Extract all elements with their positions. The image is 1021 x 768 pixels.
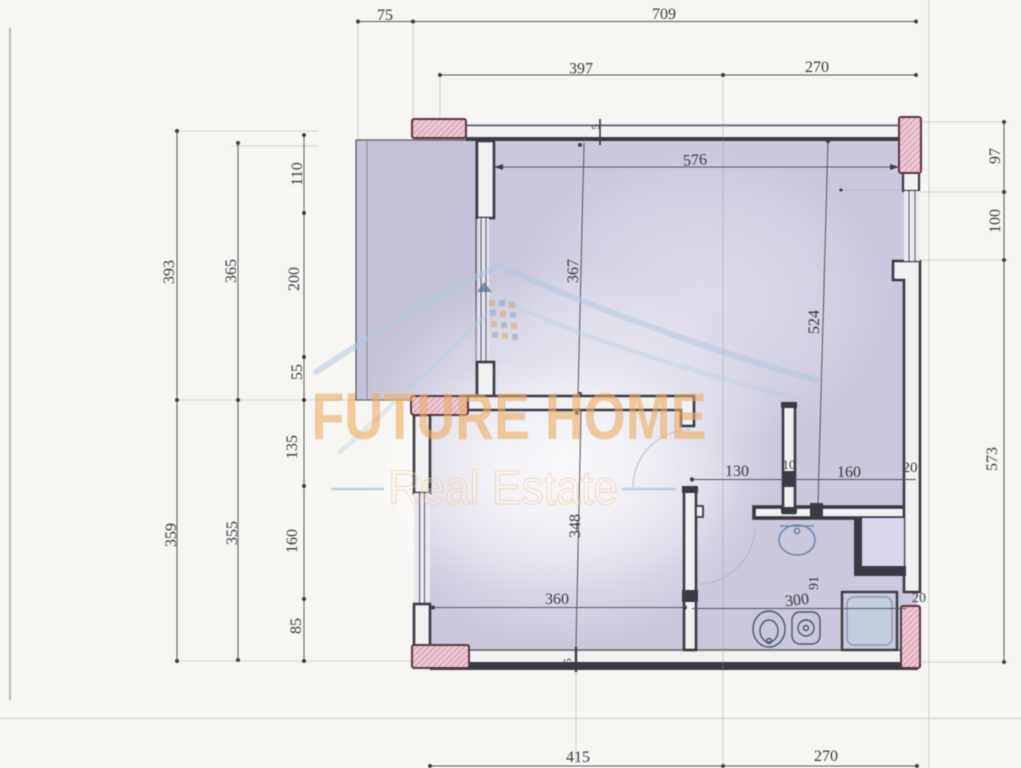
svg-text:348: 348	[567, 514, 584, 538]
svg-text:200: 200	[286, 267, 303, 291]
svg-text:576: 576	[683, 151, 708, 169]
svg-text:160: 160	[284, 529, 301, 553]
svg-text:415: 415	[566, 749, 590, 766]
svg-text:359: 359	[163, 523, 180, 547]
svg-text:524: 524	[806, 310, 823, 334]
svg-text:130: 130	[725, 463, 749, 480]
svg-text:300: 300	[784, 591, 810, 611]
svg-text:100: 100	[987, 209, 1004, 233]
svg-text:573: 573	[984, 447, 1001, 471]
svg-text:365: 365	[223, 259, 240, 283]
svg-text:270: 270	[805, 59, 829, 76]
svg-text:75: 75	[377, 7, 393, 24]
svg-text:110: 110	[289, 162, 306, 185]
svg-text:85: 85	[288, 618, 305, 634]
svg-text:160: 160	[837, 464, 861, 481]
svg-text:367: 367	[565, 259, 582, 283]
svg-text:360: 360	[545, 591, 569, 608]
svg-text:270: 270	[814, 748, 838, 765]
svg-text:20: 20	[912, 591, 926, 606]
svg-text:135: 135	[284, 435, 301, 459]
svg-text:5: 5	[590, 124, 602, 130]
svg-text:91: 91	[807, 576, 822, 590]
svg-text:97: 97	[987, 148, 1004, 164]
svg-text:393: 393	[161, 260, 178, 284]
svg-text:397: 397	[569, 61, 593, 78]
svg-text:Real Estate: Real Estate	[388, 462, 618, 515]
svg-text:709: 709	[652, 6, 676, 23]
svg-text:FUTURE HOME: FUTURE HOME	[312, 379, 707, 453]
svg-text:10: 10	[783, 457, 796, 472]
svg-text:5: 5	[562, 658, 574, 664]
svg-text:20: 20	[903, 460, 918, 476]
svg-text:55: 55	[289, 364, 306, 380]
svg-text:355: 355	[224, 521, 241, 545]
